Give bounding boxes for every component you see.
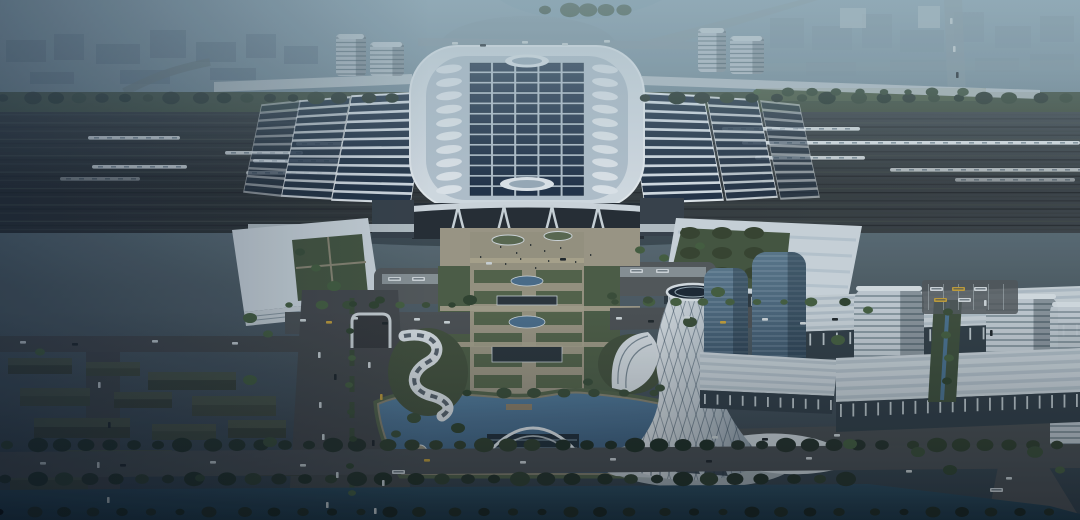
- global-tint-overlay: [0, 0, 1080, 520]
- aerial-render-station-complex: { "scene": { "palette": { "skyTop": "#8b…: [0, 0, 1080, 520]
- scene-canvas: [0, 0, 1080, 520]
